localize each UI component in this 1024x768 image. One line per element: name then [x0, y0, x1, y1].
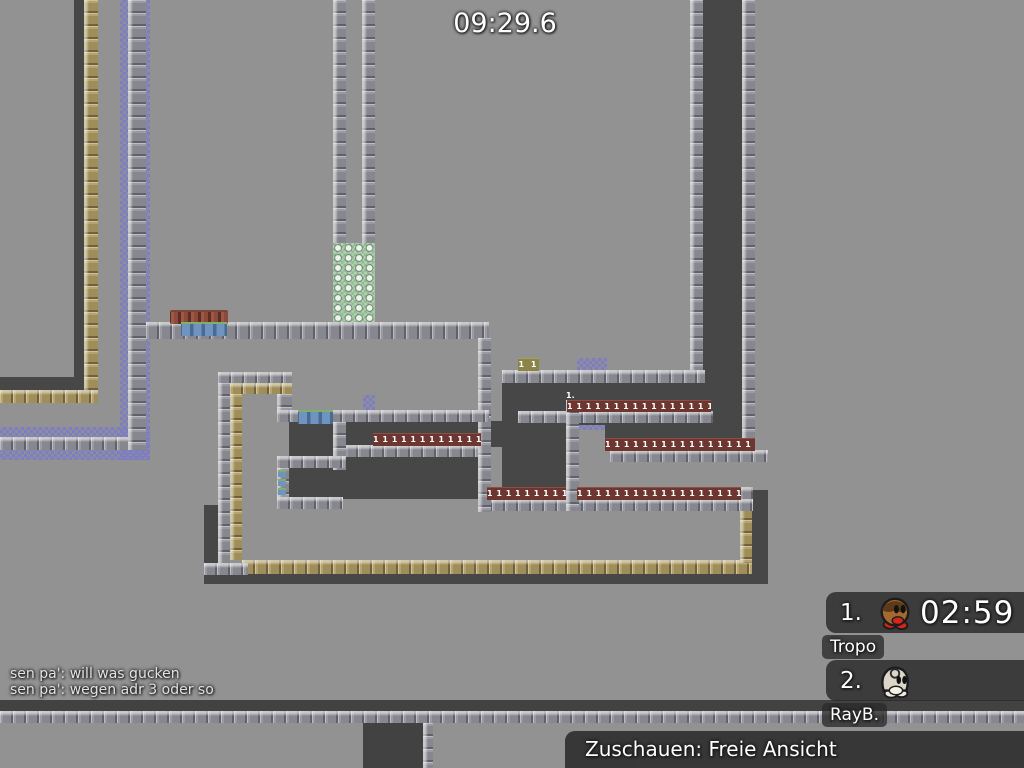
map-tile-column [128, 0, 146, 450]
map-tile-column [423, 723, 433, 768]
map-tile-column [333, 0, 346, 243]
map-switch-olive: 1 1 [518, 358, 539, 371]
map-khaki-column [84, 0, 98, 390]
player-name: Tropo [822, 635, 884, 659]
scoreboard-row-2: 2. [826, 660, 1024, 701]
map-tile-cap [740, 487, 753, 499]
scoreboard-row-1: 1. 02:59 [826, 592, 1024, 633]
map-switch-strip: 1 1 1 1 1 1 1 1 1 1 1 1 1 1 1 1 1 1 1 1 … [577, 487, 741, 500]
chat-message: sen pa': wegen adr 3 oder so [10, 682, 214, 698]
map-switch-strip: 1 1 1 1 1 1 1 1 1 1 [487, 487, 566, 500]
game-viewport: 1 1 1. 1 1 1 1 1 1 1 1 1 1 1 1 1 1 1 1 1… [0, 0, 1024, 768]
spectate-mode-label: Zuschauen: Freie Ansicht [585, 737, 837, 761]
map-freeze-patch [363, 395, 375, 410]
map-khaki-row [0, 390, 98, 403]
map-wall [204, 574, 768, 584]
map-switch-strip: 1 1 1 1 1 1 1 1 1 1 1 1 1 1 [373, 433, 481, 446]
map-wall [289, 421, 334, 457]
map-tile-row [277, 497, 343, 509]
player-avatar-icon [876, 594, 914, 632]
map-switch-strip: 1 1 1 1 1 1 1 1 1 1 1 1 1 1 1 1 1 1 1 [605, 438, 755, 451]
map-wall [289, 468, 490, 499]
map-khaki-row [230, 383, 292, 394]
player-name: RayB. [822, 703, 887, 727]
map-special-tiles [278, 470, 286, 497]
map-tile-row [277, 456, 346, 468]
map-tile-column [362, 0, 375, 243]
map-khaki-floor [242, 560, 752, 574]
map-tile-row [218, 372, 292, 383]
map-wall [702, 0, 742, 383]
map-tile-row [518, 411, 713, 423]
race-timer: 09:29.6 [453, 8, 557, 39]
rank-label: 2. [840, 668, 870, 694]
chat-log: sen pa': will was gucken sen pa': wegen … [10, 666, 214, 698]
map-tile-row [345, 445, 490, 457]
map-tile-row [204, 563, 248, 575]
map-tile-column [742, 0, 755, 460]
best-time: 02:59 [920, 595, 1014, 631]
map-tile-row [502, 370, 705, 383]
map-tile-row [0, 437, 128, 450]
spectate-mode-bar: Zuschauen: Freie Ansicht [565, 731, 1024, 768]
map-wall [0, 377, 87, 390]
rank-label: 1. [840, 600, 870, 626]
map-tile-row [479, 499, 753, 511]
map-pickup-block [333, 243, 375, 322]
map-tile-row [610, 450, 768, 462]
map-khaki-column [740, 507, 752, 563]
map-switch-strip: 1 1 1 1 1 1 1 1 1 1 1 1 1 1 1 1 1 1 [567, 400, 711, 412]
map-wall [752, 490, 768, 584]
map-special-tiles [181, 322, 227, 336]
chat-message: sen pa': will was gucken [10, 666, 214, 682]
player-avatar-icon [876, 662, 914, 700]
map-switch-lone: 1. [566, 391, 580, 400]
map-special-tiles [298, 410, 333, 424]
map-tile-column [218, 383, 230, 572]
map-tile-column [690, 0, 703, 370]
map-wall [363, 723, 423, 768]
map-khaki-column [230, 394, 242, 560]
map-tile-column [478, 338, 491, 512]
